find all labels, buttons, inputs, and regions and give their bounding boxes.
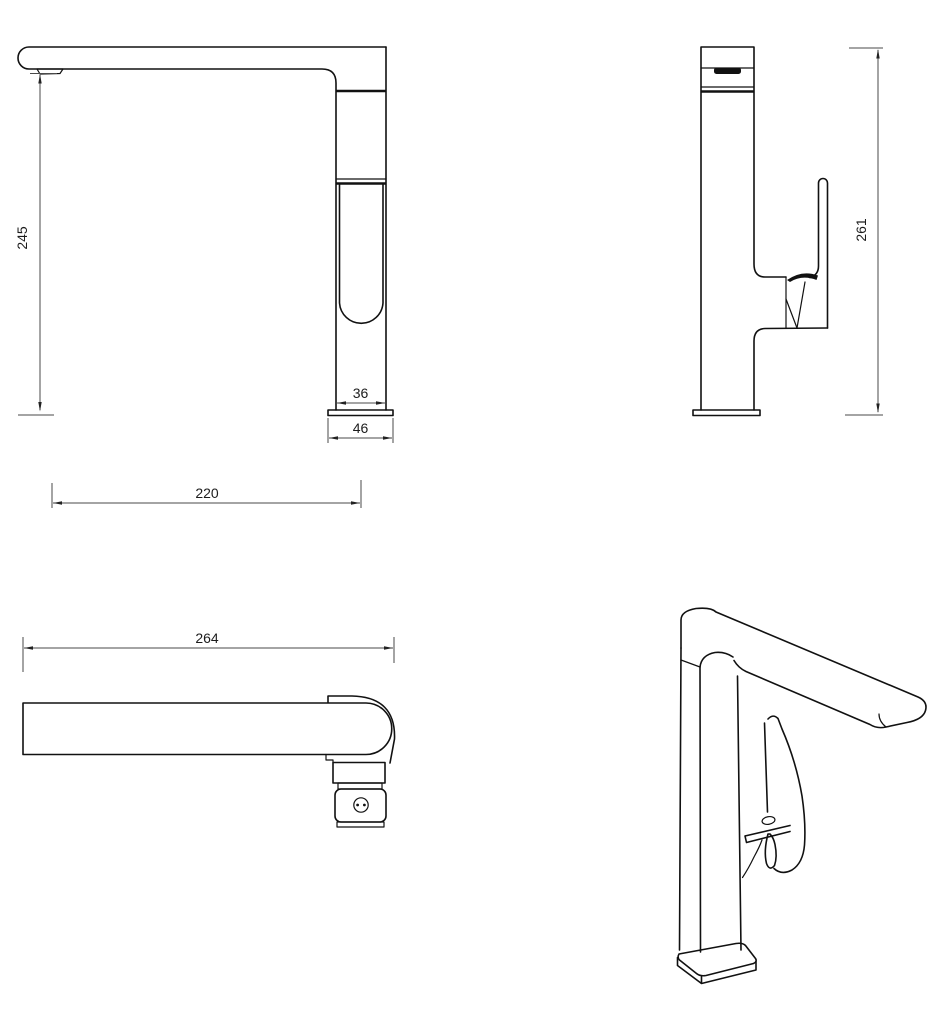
base-plate [328,410,393,416]
faucet-technical-drawing: 245 36 46 220 [0,0,936,1024]
persp-spout-outline [681,608,926,727]
handle-end-plan [335,789,386,822]
persp-handle-inner-edge [765,723,768,812]
handle-lever [810,179,828,329]
persp-inner-fillet [700,652,733,667]
top-view: 264 [23,630,395,827]
persp-fairing [743,840,763,878]
spout-outlet [714,68,741,75]
persp-column-left [680,648,682,950]
dim-label-46: 46 [353,420,369,436]
persp-handle-outline [768,716,805,872]
base-plate-front [693,410,760,416]
handle-joint-shadow [787,273,818,282]
persp-base-thickness [678,958,757,984]
persp-column-right [738,676,742,950]
dim-label-264: 264 [195,630,219,646]
dimension-length-264: 264 [23,630,394,672]
dim-label-220: 220 [195,485,219,501]
notch-step [326,755,333,763]
dimension-body-width-36: 36 [337,385,385,405]
dimension-base-width-46: 46 [328,418,393,443]
screw-dot-left [356,804,359,807]
dim-label-36: 36 [353,385,369,401]
dim-label-245: 245 [14,226,30,250]
joint-line-3 [797,282,805,328]
persp-column-mid [700,667,701,952]
spout-body-outline [18,47,386,410]
spout-plan-outline [23,703,392,755]
dim-label-261: 261 [853,218,869,242]
dimension-reach-220: 220 [52,480,361,508]
handle-base-plan [333,763,385,784]
technical-drawing-page: 245 36 46 220 [0,0,936,1024]
persp-left-seam [681,660,700,667]
handle-screw-boss [354,798,368,812]
perspective-view [678,608,927,983]
side-view: 245 36 46 220 [14,47,393,508]
spray-head-panel [340,184,384,323]
joint-line-2 [786,299,797,328]
screw-dot-right [363,804,366,807]
dimension-height-245: 245 [14,74,57,416]
handle-neck-plan [338,783,382,789]
persp-cap-sliver [879,714,886,727]
persp-teardrop [765,834,776,868]
front-view: 261 [693,47,883,416]
persp-screw-hole [761,816,775,826]
column-outline [701,47,786,410]
mount-bottom [754,328,828,410]
dimension-height-261: 261 [845,48,883,415]
persp-base-rim [678,943,756,976]
